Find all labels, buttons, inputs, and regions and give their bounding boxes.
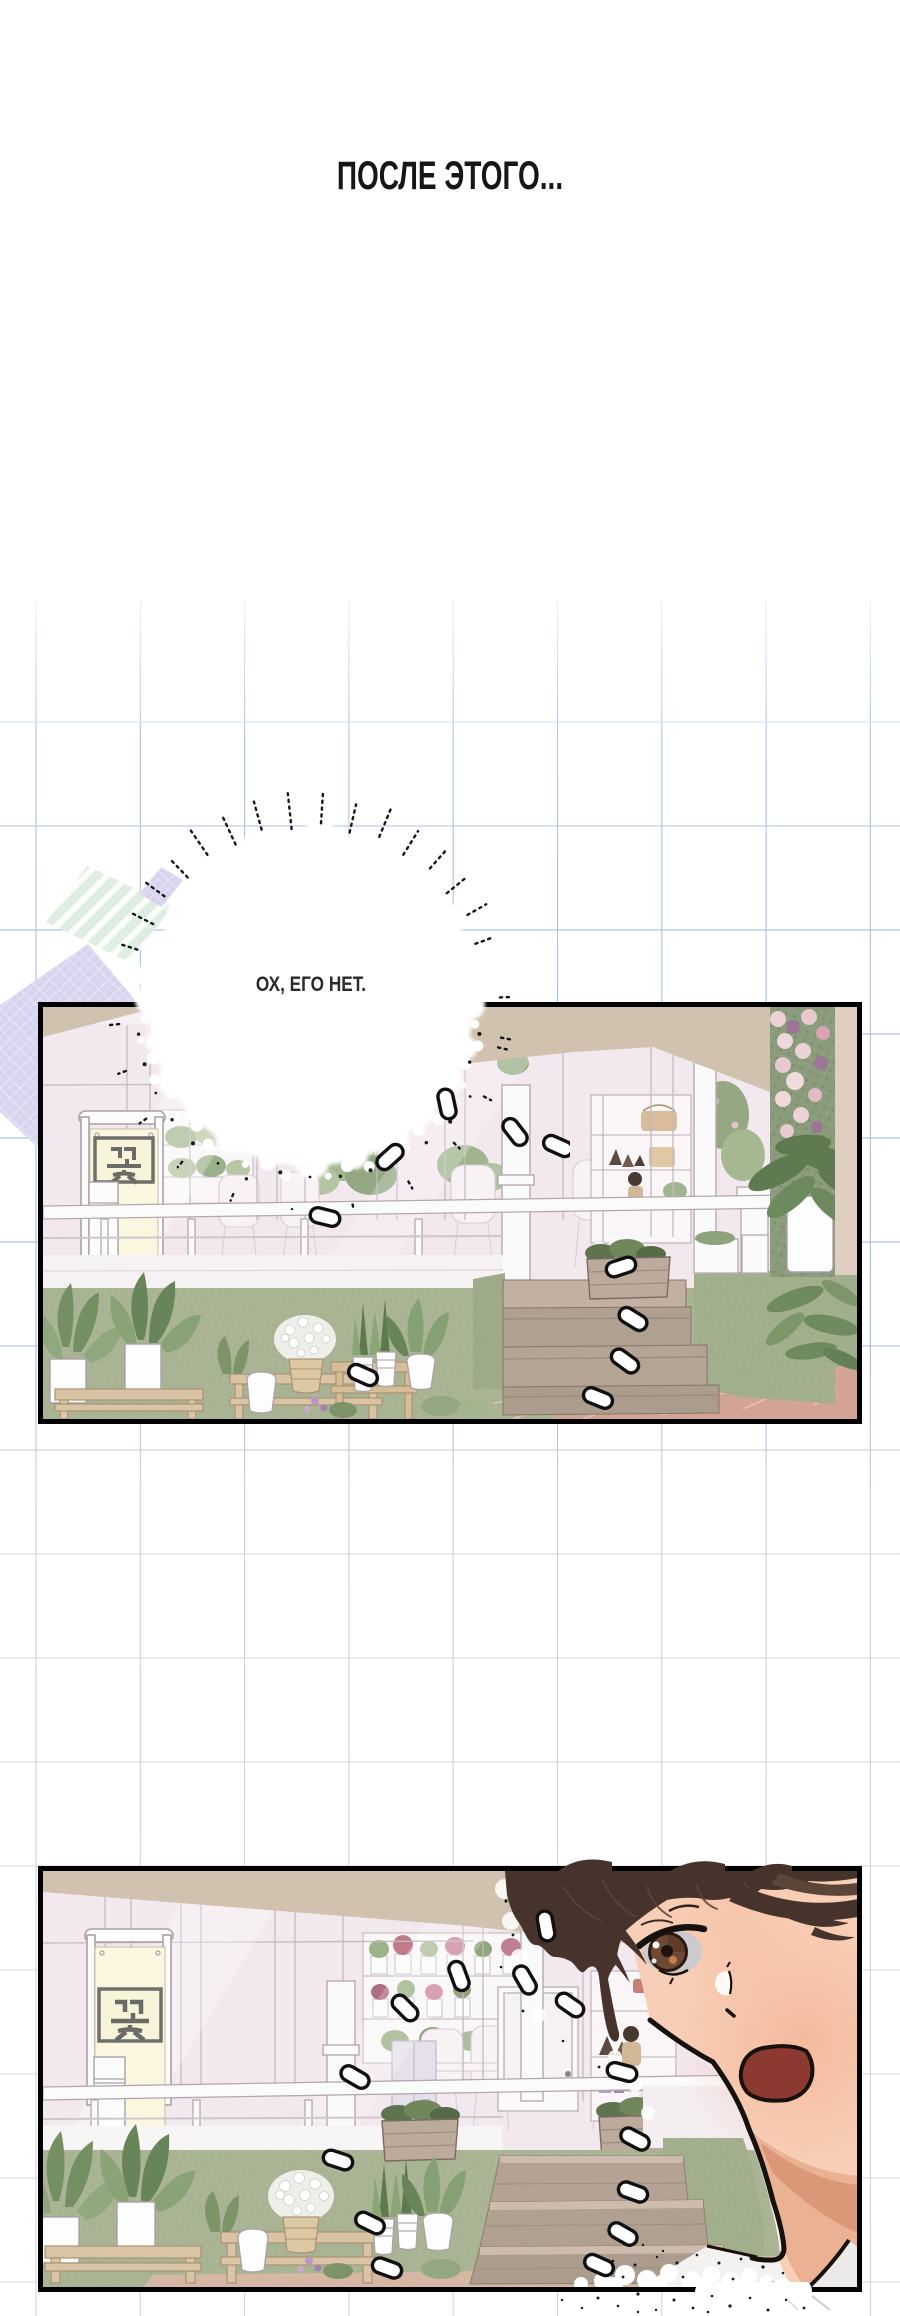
svg-text:ОХ, ЕГО НЕТ.: ОХ, ЕГО НЕТ.: [256, 974, 366, 997]
